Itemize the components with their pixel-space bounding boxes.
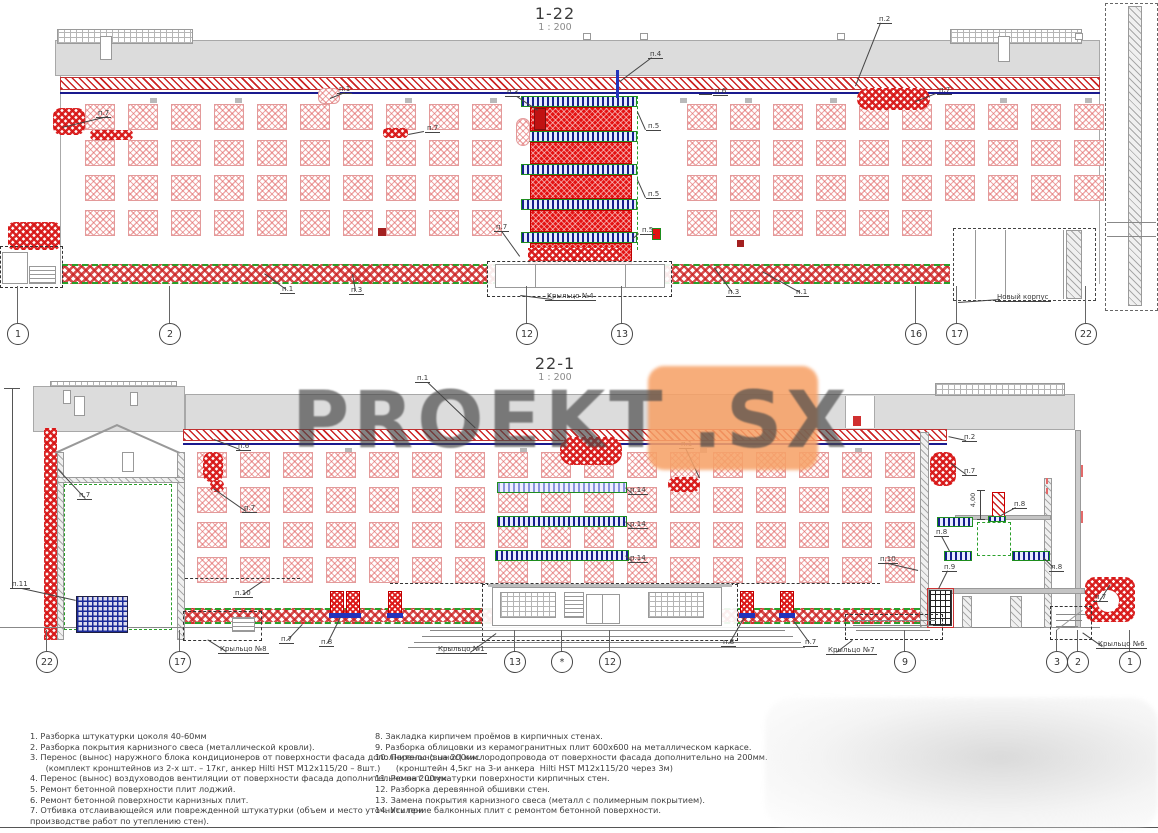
note-leader: п.9 xyxy=(942,563,957,572)
window-cell xyxy=(756,557,786,583)
window-cell xyxy=(687,175,717,201)
window-cell xyxy=(988,140,1018,166)
notch-mark xyxy=(853,416,861,426)
window-cell xyxy=(885,522,915,548)
balcony-railing-band xyxy=(497,516,627,527)
loggia-railing-band xyxy=(521,164,637,175)
facade-clip xyxy=(150,98,157,103)
tower-line xyxy=(1107,236,1156,237)
axis-line xyxy=(1085,286,1086,323)
axis-line xyxy=(609,630,610,651)
entrance-step xyxy=(422,636,793,637)
parapet-opening xyxy=(74,396,85,416)
leader-line xyxy=(941,536,950,551)
window-cell xyxy=(85,210,115,236)
window-cell xyxy=(859,175,889,201)
axis-bubble: 13 xyxy=(504,651,526,673)
window-cell xyxy=(257,175,287,201)
window-cell xyxy=(240,452,270,478)
window-cell xyxy=(85,175,115,201)
window-cell xyxy=(412,522,442,548)
section-tick xyxy=(4,388,20,389)
watermark-suffix: .SX xyxy=(692,376,850,466)
axis-line xyxy=(561,630,562,651)
watermark-text: PROEKT xyxy=(292,376,666,466)
roof-railing xyxy=(950,29,1082,44)
window-cell xyxy=(343,175,373,201)
window-cell xyxy=(713,557,743,583)
loggia-damage-zone xyxy=(530,175,632,199)
window-cell xyxy=(386,175,416,201)
axis-line xyxy=(1056,630,1057,651)
window-cell xyxy=(773,140,803,166)
tower-line xyxy=(1107,222,1156,223)
green-dash-line xyxy=(637,96,638,250)
window-cell xyxy=(816,140,846,166)
entrance-step xyxy=(414,642,801,643)
window-cell xyxy=(214,175,244,201)
window-cell xyxy=(326,487,356,513)
porch-step xyxy=(850,620,936,621)
callout-label: Новый корпус xyxy=(995,293,1051,302)
window-cell xyxy=(412,487,442,513)
window-cell xyxy=(300,140,330,166)
ground-window xyxy=(740,591,754,614)
window-cell xyxy=(902,140,932,166)
porch-slab xyxy=(495,264,665,288)
riser-line xyxy=(616,70,619,98)
roof-stub xyxy=(583,33,591,40)
annex-louver xyxy=(29,266,56,284)
note-leader: п.6 xyxy=(713,87,728,96)
porch-step xyxy=(856,630,930,631)
loggia-damage-zone xyxy=(530,210,632,232)
balcony-railing-band xyxy=(495,550,629,561)
parapet-opening xyxy=(130,392,138,406)
window-cell xyxy=(945,104,975,130)
damage-block xyxy=(534,108,546,130)
note-line: 10. Перенос (вынос) кислородопровода от … xyxy=(375,752,768,763)
window-cell xyxy=(343,140,373,166)
window-cell xyxy=(128,175,158,201)
window-cell xyxy=(214,104,244,130)
parapet-band xyxy=(55,40,1100,76)
window-cell xyxy=(988,175,1018,201)
facade-clip xyxy=(490,98,497,103)
window-cell xyxy=(1074,175,1104,201)
axis-bubble: 2 xyxy=(159,323,181,345)
window-cell xyxy=(945,175,975,201)
window-cell xyxy=(945,140,975,166)
window-cell xyxy=(799,557,829,583)
facade-clip xyxy=(745,98,752,103)
blur-overlay xyxy=(765,698,1158,830)
damage-stain xyxy=(383,128,408,138)
window-cell xyxy=(816,210,846,236)
window-cell xyxy=(816,104,846,130)
oxygen-pipe-block xyxy=(76,596,128,633)
callout-label: Крыльцо №6 xyxy=(1096,640,1147,649)
roof-railing xyxy=(50,381,177,387)
red-dash-tick xyxy=(1046,478,1048,494)
window-cell xyxy=(455,557,485,583)
window-cell xyxy=(214,210,244,236)
ground-window xyxy=(346,591,360,614)
window-cell xyxy=(429,140,459,166)
window-cell xyxy=(799,522,829,548)
window-cell xyxy=(730,175,760,201)
note-leader: п.3 xyxy=(726,288,741,297)
window-cell xyxy=(386,140,416,166)
storefront-window xyxy=(648,592,704,618)
note-line: 11. Ремонт штукатурки поверхности кирпич… xyxy=(375,773,768,784)
window-cell xyxy=(171,104,201,130)
loggia-damage-zone xyxy=(530,142,632,164)
facade-clip xyxy=(1000,98,1007,103)
damage-stain xyxy=(203,452,223,482)
window-sill xyxy=(739,613,755,618)
annex-box xyxy=(2,252,28,284)
window-sill xyxy=(345,613,361,618)
damage-stain xyxy=(668,477,700,492)
porch-divider xyxy=(535,264,536,288)
window-cell xyxy=(128,104,158,130)
window-cell xyxy=(283,557,313,583)
axis-bubble: 2 xyxy=(1067,651,1089,673)
window-cell xyxy=(988,104,1018,130)
section-railing xyxy=(944,551,972,561)
window-cell xyxy=(197,522,227,548)
section-edge xyxy=(1075,430,1081,628)
note-leader: п.7 xyxy=(803,638,818,647)
new-building-divider xyxy=(1063,230,1064,299)
window-cell xyxy=(1074,104,1104,130)
window-cell xyxy=(670,557,700,583)
damage-stain xyxy=(930,452,956,486)
callout-label: Крыльцо №8 xyxy=(218,645,269,654)
window-cell xyxy=(257,104,287,130)
note-leader: п.5 xyxy=(646,122,661,131)
anchor-square xyxy=(737,240,744,247)
window-cell xyxy=(429,175,459,201)
storefront-grille xyxy=(564,592,584,618)
axis-bubble: 13 xyxy=(611,323,633,345)
note-line: 14. Усиление балконных плит с ремонтом б… xyxy=(375,805,768,816)
watermark: PROEKT.SX xyxy=(292,376,850,466)
ground-window xyxy=(330,591,344,614)
window-cell xyxy=(773,210,803,236)
entrance-step xyxy=(430,630,785,631)
note-leader: п.5 xyxy=(640,226,655,235)
leader-line xyxy=(243,581,263,595)
axis-bubble: 22 xyxy=(36,651,58,673)
window-cell xyxy=(842,522,872,548)
storefront-window xyxy=(500,592,556,618)
window-cell xyxy=(128,210,158,236)
note-leader: п.3 xyxy=(349,286,364,295)
roof-railing xyxy=(935,383,1065,396)
axis-bubble: 1 xyxy=(1119,651,1141,673)
anchor-square xyxy=(378,228,386,236)
mini-railing xyxy=(988,516,1006,522)
note-leader: п.5 xyxy=(646,190,661,199)
window-cell xyxy=(369,557,399,583)
window-cell xyxy=(283,522,313,548)
window-cell xyxy=(472,104,502,130)
window-cell xyxy=(756,522,786,548)
axis-bubble: 16 xyxy=(905,323,927,345)
roof-stub xyxy=(640,33,648,40)
attic-door xyxy=(122,452,134,472)
axis-bubble: 17 xyxy=(946,323,968,345)
window-cell xyxy=(687,210,717,236)
dimension-label: 4,00 xyxy=(969,493,977,507)
axis-line xyxy=(514,630,515,651)
window-cell xyxy=(386,210,416,236)
axis-bubble: 1 xyxy=(7,323,29,345)
damage-stain xyxy=(516,118,530,146)
window-cell xyxy=(756,487,786,513)
window-cell xyxy=(902,210,932,236)
loggia-railing-band xyxy=(521,131,637,142)
zone-dash-line xyxy=(390,583,880,584)
dim-line xyxy=(980,490,981,520)
axis-line xyxy=(179,630,180,651)
axis-bubble: 3 xyxy=(1046,651,1068,673)
window-cell xyxy=(472,175,502,201)
window-cell xyxy=(1031,104,1061,130)
window-cell xyxy=(1074,140,1104,166)
window-cell xyxy=(713,487,743,513)
loggia-railing-band xyxy=(521,232,637,243)
entrance-door xyxy=(586,594,620,624)
note-line: производстве работ по утеплению стен). xyxy=(30,816,481,827)
window-sill xyxy=(387,613,403,618)
window-cell xyxy=(687,140,717,166)
window-cell xyxy=(670,522,700,548)
section-line xyxy=(12,388,13,588)
window-cell xyxy=(885,452,915,478)
chimney xyxy=(100,36,112,60)
axis-line xyxy=(17,286,18,323)
axis-bubble: 12 xyxy=(599,651,621,673)
window-cell xyxy=(902,175,932,201)
window-cell xyxy=(859,140,889,166)
note-line: 13. Замена покрытия карнизного свеса (ме… xyxy=(375,795,768,806)
axis-line xyxy=(915,286,916,323)
window-cell xyxy=(472,140,502,166)
axis-line xyxy=(1077,630,1078,651)
window-sill xyxy=(329,613,345,618)
axis-line xyxy=(904,630,905,651)
axis-bubble: 12 xyxy=(516,323,538,345)
ceiling-beam xyxy=(57,477,185,483)
axis-line xyxy=(46,630,47,651)
loggia-railing-band xyxy=(521,199,637,210)
section-column xyxy=(962,596,972,628)
parapet-opening xyxy=(63,390,71,404)
note-leader: п.7 xyxy=(425,124,440,133)
damage-strip xyxy=(44,428,57,640)
porch-step xyxy=(1056,614,1086,615)
red-dash-tick xyxy=(1081,465,1083,477)
drawing-sheet: 1-22 1 : 200 22-1 1 : 200 121213161722п.… xyxy=(0,0,1158,833)
window-cell xyxy=(687,104,717,130)
window-cell xyxy=(386,104,416,130)
loggia-railing-band xyxy=(521,96,637,107)
window-cell xyxy=(369,487,399,513)
window-cell xyxy=(713,522,743,548)
window-cell xyxy=(197,557,227,583)
axis-line xyxy=(621,286,622,323)
section-column xyxy=(1010,596,1022,628)
door-split xyxy=(602,594,603,624)
facade-clip xyxy=(830,98,837,103)
callout-label: Крыльцо №7 xyxy=(826,646,877,655)
note-line: (кронштейн 4,5кг на 3-и анкера Hilti HST… xyxy=(375,763,768,774)
damage-stain xyxy=(90,130,133,140)
ground-window xyxy=(780,591,794,614)
window-sill xyxy=(779,613,795,618)
window-cell xyxy=(773,175,803,201)
window-cell xyxy=(455,522,485,548)
window-cell xyxy=(171,175,201,201)
window-cell xyxy=(730,140,760,166)
porch-louver xyxy=(232,617,255,632)
axis-bubble: 17 xyxy=(169,651,191,673)
left-parapet-block xyxy=(33,386,185,432)
window-cell xyxy=(859,210,889,236)
window-cell xyxy=(171,140,201,166)
axis-line xyxy=(526,286,527,323)
note-leader: п.7 xyxy=(242,504,257,513)
note-line: 12. Разборка деревянной обшивки стен. xyxy=(375,784,768,795)
facade-clip xyxy=(235,98,242,103)
dim-tick xyxy=(977,490,985,491)
window-cell xyxy=(429,210,459,236)
new-building-divider xyxy=(1005,230,1006,299)
axis-bubble: 22 xyxy=(1075,323,1097,345)
leader-line xyxy=(938,571,948,589)
axis-line xyxy=(956,286,957,323)
window-cell xyxy=(455,487,485,513)
roof-railing xyxy=(57,29,193,44)
window-cell xyxy=(369,522,399,548)
facade-clip xyxy=(680,98,687,103)
window-cell xyxy=(1031,175,1061,201)
new-building-divider xyxy=(975,230,976,299)
roof-stub xyxy=(1075,33,1083,40)
roof-stub xyxy=(837,33,845,40)
window-cell xyxy=(730,210,760,236)
ground-window xyxy=(388,591,402,614)
window-cell xyxy=(257,210,287,236)
window-cell xyxy=(240,557,270,583)
facade-clip xyxy=(405,98,412,103)
window-cell xyxy=(842,557,872,583)
window-cell xyxy=(240,522,270,548)
window-cell xyxy=(842,487,872,513)
callout-label: Крыльцо №4 xyxy=(545,292,596,301)
new-building-hatch xyxy=(1066,230,1082,299)
facade-clip xyxy=(1085,98,1092,103)
window-cell xyxy=(343,104,373,130)
window-cell xyxy=(300,210,330,236)
note-line: 8. Закладка кирпичем проёмов в кирпичных… xyxy=(375,731,768,742)
interior-outline xyxy=(977,522,1011,556)
note-line: 9. Разборка облицовки из керамогранитных… xyxy=(375,742,768,753)
window-cell xyxy=(300,175,330,201)
window-cell xyxy=(730,104,760,130)
window-cell xyxy=(128,140,158,166)
leader-line xyxy=(699,94,712,95)
window-cell xyxy=(799,487,829,513)
note-leader: п.11 xyxy=(10,580,30,589)
window-cell xyxy=(412,557,442,583)
window-cell xyxy=(283,487,313,513)
balcony-railing-band xyxy=(497,482,627,493)
zone-dash-line xyxy=(185,578,300,579)
window-cell xyxy=(1031,140,1061,166)
note-leader: п.7 xyxy=(937,86,952,95)
window-cell xyxy=(885,487,915,513)
axis-bubble: * xyxy=(551,651,573,673)
window-cell xyxy=(816,175,846,201)
tower-hatch xyxy=(1128,6,1142,306)
axis-line xyxy=(169,286,170,323)
window-cell xyxy=(171,210,201,236)
window-cell xyxy=(326,522,356,548)
axis-bubble: 9 xyxy=(894,651,916,673)
window-cell xyxy=(257,140,287,166)
notes-column-right: 8. Закладка кирпичем проёмов в кирпичных… xyxy=(375,731,768,816)
window-cell xyxy=(214,140,244,166)
porch-step xyxy=(853,625,933,626)
window-cell xyxy=(300,104,330,130)
porch-outline xyxy=(845,614,943,640)
window-cell xyxy=(343,210,373,236)
section-railing xyxy=(937,517,973,527)
window-cell xyxy=(326,557,356,583)
note-leader: п.3 xyxy=(505,88,520,97)
window-cell xyxy=(85,140,115,166)
porch-divider xyxy=(625,264,626,288)
red-dash-tick xyxy=(1081,511,1083,523)
window-cell xyxy=(773,104,803,130)
chimney xyxy=(998,36,1010,62)
